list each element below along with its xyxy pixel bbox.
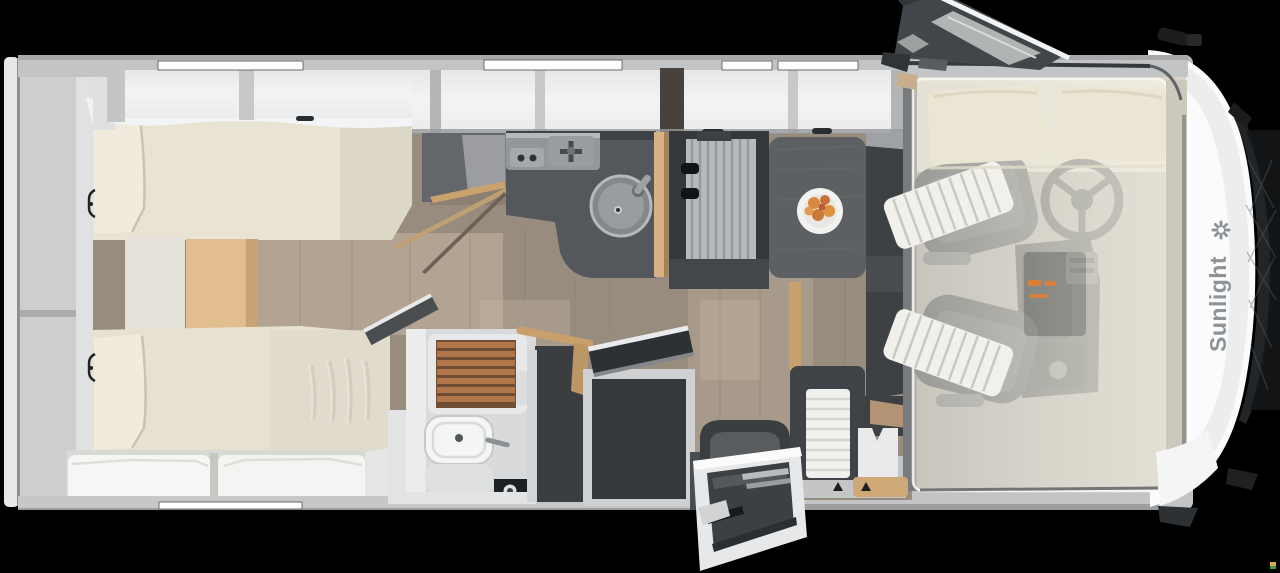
svg-text:Sunlight: Sunlight	[1205, 256, 1231, 352]
